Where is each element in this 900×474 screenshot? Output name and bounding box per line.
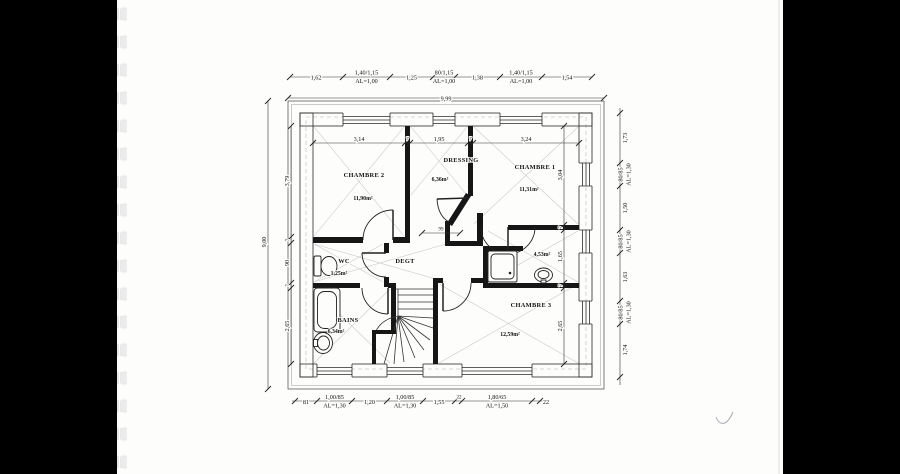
dimension-left-total: 9,00 xyxy=(261,98,271,392)
room-area-wc: 1,25m² xyxy=(331,271,348,277)
room-area-bains: 6,34m² xyxy=(328,329,345,335)
dimension-chain-bottom: 81 1,00/85 AL=1,30 1,20 1,00/85 AL=1,30 … xyxy=(292,394,549,410)
floor-plan-canvas: CHAMBRE 2 11,90m² DRESSING 6,36m² CHAMBR… xyxy=(0,0,900,474)
wall-bains-north-a xyxy=(313,283,360,288)
dim-top-win2: 80/1,15 xyxy=(435,70,454,77)
pen-squiggle-mark xyxy=(716,412,733,423)
dim-top-seg3: 1,38 xyxy=(472,75,483,82)
dim-bottom-win2: 1,00/85 xyxy=(396,394,415,401)
dim-right-win3-al: AL=1,30 xyxy=(626,301,633,324)
room-label-chambre1: CHAMBRE 1 xyxy=(515,164,556,171)
room-area-salle-eau: 4,53m² xyxy=(534,252,551,258)
dim-innerleft-5: 2,65 xyxy=(284,321,291,332)
dim-left-total: 9,00 xyxy=(261,237,268,248)
dim-right-seg3: 1,63 xyxy=(622,272,629,283)
dim-right-seg1: 1,73 xyxy=(622,133,629,144)
wall-shower-west xyxy=(483,246,488,288)
wall-bains-north-b xyxy=(388,283,396,288)
dim-bottom-seg2: 1,20 xyxy=(364,399,375,406)
dim-innerright-3: 1,65 xyxy=(557,251,564,262)
dim-right-win1: 80/85 xyxy=(618,167,625,181)
washbasin-bains xyxy=(314,333,333,354)
dim-bottom-win3-al: AL=1,50 xyxy=(486,403,509,410)
floor-plan: CHAMBRE 2 11,90m² DRESSING 6,36m² CHAMBR… xyxy=(261,70,633,410)
dim-bottom-seg1: 81 xyxy=(303,399,309,406)
wall-wc-north-a xyxy=(313,237,363,243)
dim-innerright-5: 2,65 xyxy=(557,321,564,332)
washbasin-salle-eau xyxy=(535,268,553,283)
dimension-chain-inner-top: 3,14 7 1,95 7 3,24 xyxy=(310,136,582,146)
window-right-1 xyxy=(579,163,593,186)
window-bottom-3 xyxy=(462,364,532,378)
dim-right-seg2: 1,50 xyxy=(622,203,629,214)
dimension-chain-inner-right: 3,04 7 1,65 7 2,65 xyxy=(557,123,567,367)
dim-top-win1-al: AL=1,00 xyxy=(355,78,378,85)
dim-top-win2-al: AL=1,00 xyxy=(433,78,456,85)
window-top-2 xyxy=(433,113,455,127)
wall-wc-north-b xyxy=(393,237,410,243)
dim-right-win3: 80/85 xyxy=(618,305,625,319)
scanned-floor-plan-page: CHAMBRE 2 11,90m² DRESSING 6,36m² CHAMBR… xyxy=(0,0,900,474)
dim-bottom-win3: 1,80/65 xyxy=(488,394,507,401)
dimension-chain-inner-left: 3,79 7 90 7 2,65 xyxy=(284,123,294,367)
window-bottom-2 xyxy=(387,364,423,378)
room-label-wc: WC xyxy=(338,258,350,265)
dim-bottom-win2-al: AL=1,30 xyxy=(394,403,417,410)
dim-right-seg4: 1,74 xyxy=(622,345,629,356)
dim-top-seg1: 1,62 xyxy=(311,75,322,82)
wall-wc-east-a xyxy=(384,243,389,253)
room-area-dressing: 6,36m² xyxy=(432,177,449,183)
door-chambre2 xyxy=(363,210,393,240)
exterior-wall-left xyxy=(300,113,313,377)
dim-right-win2: 80/85 xyxy=(618,234,625,248)
dim-right-win2-al: AL=1,30 xyxy=(626,230,633,253)
dim-top-win3-al: AL=1,00 xyxy=(510,78,533,85)
room-label-chambre3: CHAMBRE 3 xyxy=(511,302,552,309)
dim-bottom-seg4: 22 xyxy=(457,396,463,401)
room-label-dressing: DRESSING xyxy=(443,157,478,164)
scan-black-margin-left xyxy=(0,0,117,474)
dim-innerleft-3: 90 xyxy=(284,260,291,266)
dim-top-total: 9,99 xyxy=(441,96,452,103)
scan-black-margin-right xyxy=(783,0,900,474)
room-area-chambre1: 11,31m² xyxy=(519,187,539,193)
window-top-3 xyxy=(500,113,542,127)
bathtub xyxy=(314,288,340,332)
window-top-1 xyxy=(343,113,390,127)
window-right-2 xyxy=(579,230,593,253)
room-label-degt: DEGT xyxy=(395,258,415,265)
dim-bottom-seg5: 22 xyxy=(543,399,549,406)
room-area-chambre2: 11,90m² xyxy=(353,196,373,202)
dim-bottom-win1: 1,00/85 xyxy=(325,394,344,401)
dim-opening-99: 99 xyxy=(439,228,445,233)
window-bottom-1 xyxy=(317,364,352,378)
room-label-bains: BAINS xyxy=(337,317,358,324)
dim-innerright-1: 3,04 xyxy=(557,170,564,181)
shower-tray xyxy=(488,251,517,282)
dim-innertop-5: 3,24 xyxy=(521,136,532,143)
dim-innertop-1: 3,14 xyxy=(354,136,365,143)
window-right-3 xyxy=(579,301,593,324)
room-area-chambre3: 12,59m² xyxy=(500,332,520,338)
dim-top-win3: 1,40/1,15 xyxy=(509,70,532,77)
spiral-binding xyxy=(117,0,127,474)
dimension-chain-right: 1,73 80/85 AL=1,30 1,50 80/85 AL=1,30 1,… xyxy=(617,108,633,385)
wall-chambre1-south xyxy=(508,225,579,230)
dim-bottom-win1-al: AL=1,30 xyxy=(323,403,346,410)
dim-top-seg4: 1,54 xyxy=(562,75,573,82)
dim-right-win1-al: AL=1,30 xyxy=(626,163,633,186)
wall-chambre3-north-a xyxy=(438,278,443,283)
wall-lobby-west xyxy=(477,213,483,246)
wall-chambre3-north-b xyxy=(471,278,483,283)
staircase[interactable] xyxy=(374,289,433,364)
dim-innertop-3: 1,95 xyxy=(434,136,445,143)
door-chambre3 xyxy=(443,283,471,311)
dimension-corridor-opening: 99 xyxy=(419,228,463,237)
dimension-chain-top: 1,62 1,40/1,15 AL=1,00 1,25 80/1,15 AL=1… xyxy=(285,70,607,103)
room-label-chambre2: CHAMBRE 2 xyxy=(344,172,385,179)
dim-innerleft-1: 3,79 xyxy=(284,176,291,187)
dim-top-win1: 1,40/1,15 xyxy=(355,70,378,77)
wall-stairs-east xyxy=(433,278,438,364)
dim-bottom-seg3: 1,55 xyxy=(434,399,445,406)
door-bains xyxy=(362,288,388,314)
dim-top-seg2: 1,25 xyxy=(406,75,417,82)
